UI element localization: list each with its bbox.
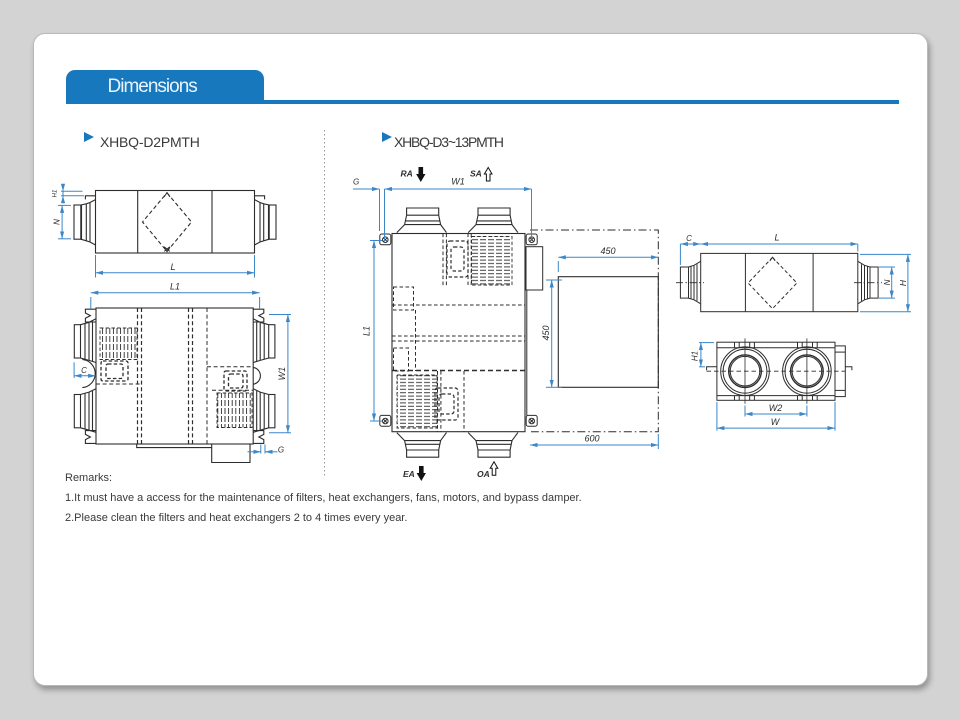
svg-text:L: L	[170, 262, 175, 272]
svg-text:450: 450	[600, 246, 615, 256]
svg-text:C: C	[686, 234, 692, 243]
svg-text:L1: L1	[170, 282, 180, 292]
svg-text:W: W	[771, 417, 781, 427]
svg-text:H1: H1	[53, 190, 59, 198]
svg-text:L1: L1	[362, 326, 372, 336]
svg-text:OA: OA	[477, 469, 490, 479]
svg-text:N: N	[883, 279, 892, 285]
svg-text:G: G	[353, 178, 359, 187]
svg-text:C: C	[81, 366, 87, 375]
svg-text:W1: W1	[451, 177, 465, 187]
svg-text:450: 450	[541, 325, 551, 340]
svg-text:SA: SA	[470, 169, 482, 179]
svg-text:H: H	[898, 279, 908, 286]
svg-text:G: G	[278, 446, 284, 455]
svg-text:N: N	[53, 219, 62, 225]
svg-text:W1: W1	[277, 367, 287, 381]
svg-text:W2: W2	[769, 403, 783, 413]
svg-text:L: L	[774, 233, 779, 243]
svg-text:H1: H1	[690, 351, 699, 361]
svg-text:600: 600	[584, 434, 599, 444]
svg-text:RA: RA	[401, 169, 413, 179]
svg-text:EA: EA	[403, 469, 415, 479]
